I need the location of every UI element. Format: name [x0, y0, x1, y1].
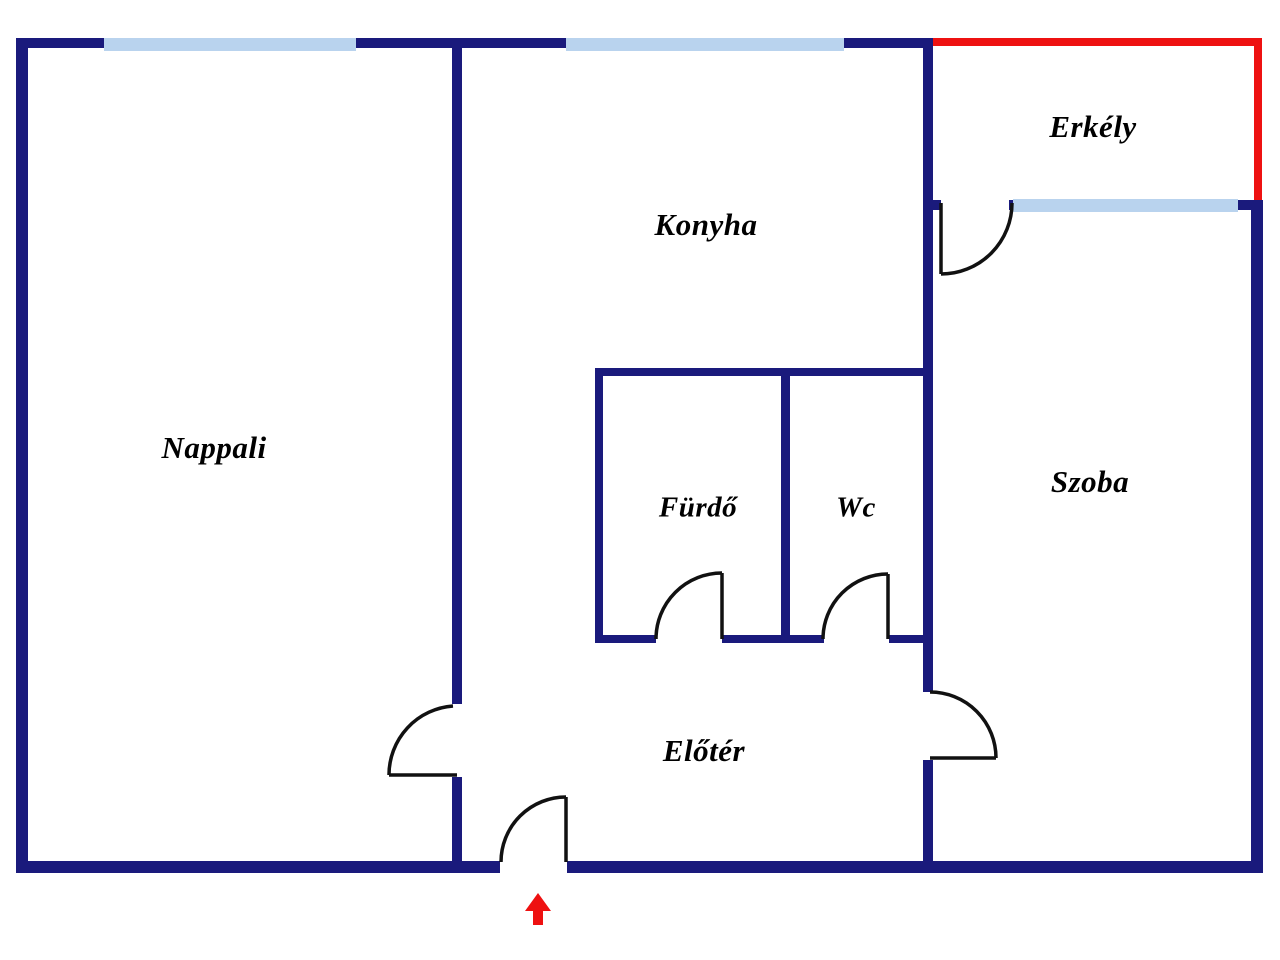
window-nappali [104, 38, 356, 51]
balcony-wall-right [1254, 38, 1262, 203]
wall-wc-bottom-seg2 [889, 635, 933, 643]
room-label-erkely: Erkély [1049, 109, 1136, 145]
wall-outer-right [1251, 203, 1263, 873]
door-arc-szoba [930, 692, 996, 758]
window-szoba [1013, 199, 1238, 212]
entrance-arrow-icon [525, 893, 551, 925]
wall-outer-top-seg3 [844, 38, 933, 48]
wall-outer-bottom-seg2 [567, 861, 1263, 873]
room-label-wc: Wc [836, 492, 876, 525]
floor-plan: Nappali Konyha Erkély Fürdő Wc Szoba Elő… [0, 0, 1280, 960]
window-konyha [566, 38, 844, 51]
room-label-nappali: Nappali [161, 430, 266, 466]
room-label-furdo: Fürdő [659, 492, 737, 525]
door-arc-erkely [941, 203, 1012, 274]
room-label-konyha: Konyha [655, 207, 758, 243]
wall-bath-left [595, 376, 603, 643]
wall-bath-bottom-seg1 [595, 635, 656, 643]
wall-nappali-divider-upper [452, 48, 462, 704]
balcony-wall-top [933, 38, 1262, 46]
door-arc-nappali [389, 706, 453, 775]
door-arc-furdo [656, 573, 722, 639]
wall-outer-top-seg2 [356, 38, 566, 48]
door-arc-entrance [501, 797, 566, 862]
wall-outer-top-seg1 [16, 38, 104, 48]
wall-bath-wc-divider [781, 368, 790, 643]
wall-outer-left [16, 38, 28, 873]
wall-wc-bottom-seg1 [790, 635, 824, 643]
room-label-szoba: Szoba [1051, 464, 1129, 500]
wall-szoba-top-right [1238, 200, 1263, 210]
room-label-eloter: Előtér [663, 733, 745, 769]
wall-nappali-divider-lower [452, 777, 462, 861]
door-arc-wc [823, 574, 888, 639]
wall-main-divider-lower [923, 760, 933, 861]
wall-bath-top [595, 368, 933, 376]
wall-outer-bottom-seg1 [16, 861, 500, 873]
wall-bath-bottom-seg2 [722, 635, 782, 643]
